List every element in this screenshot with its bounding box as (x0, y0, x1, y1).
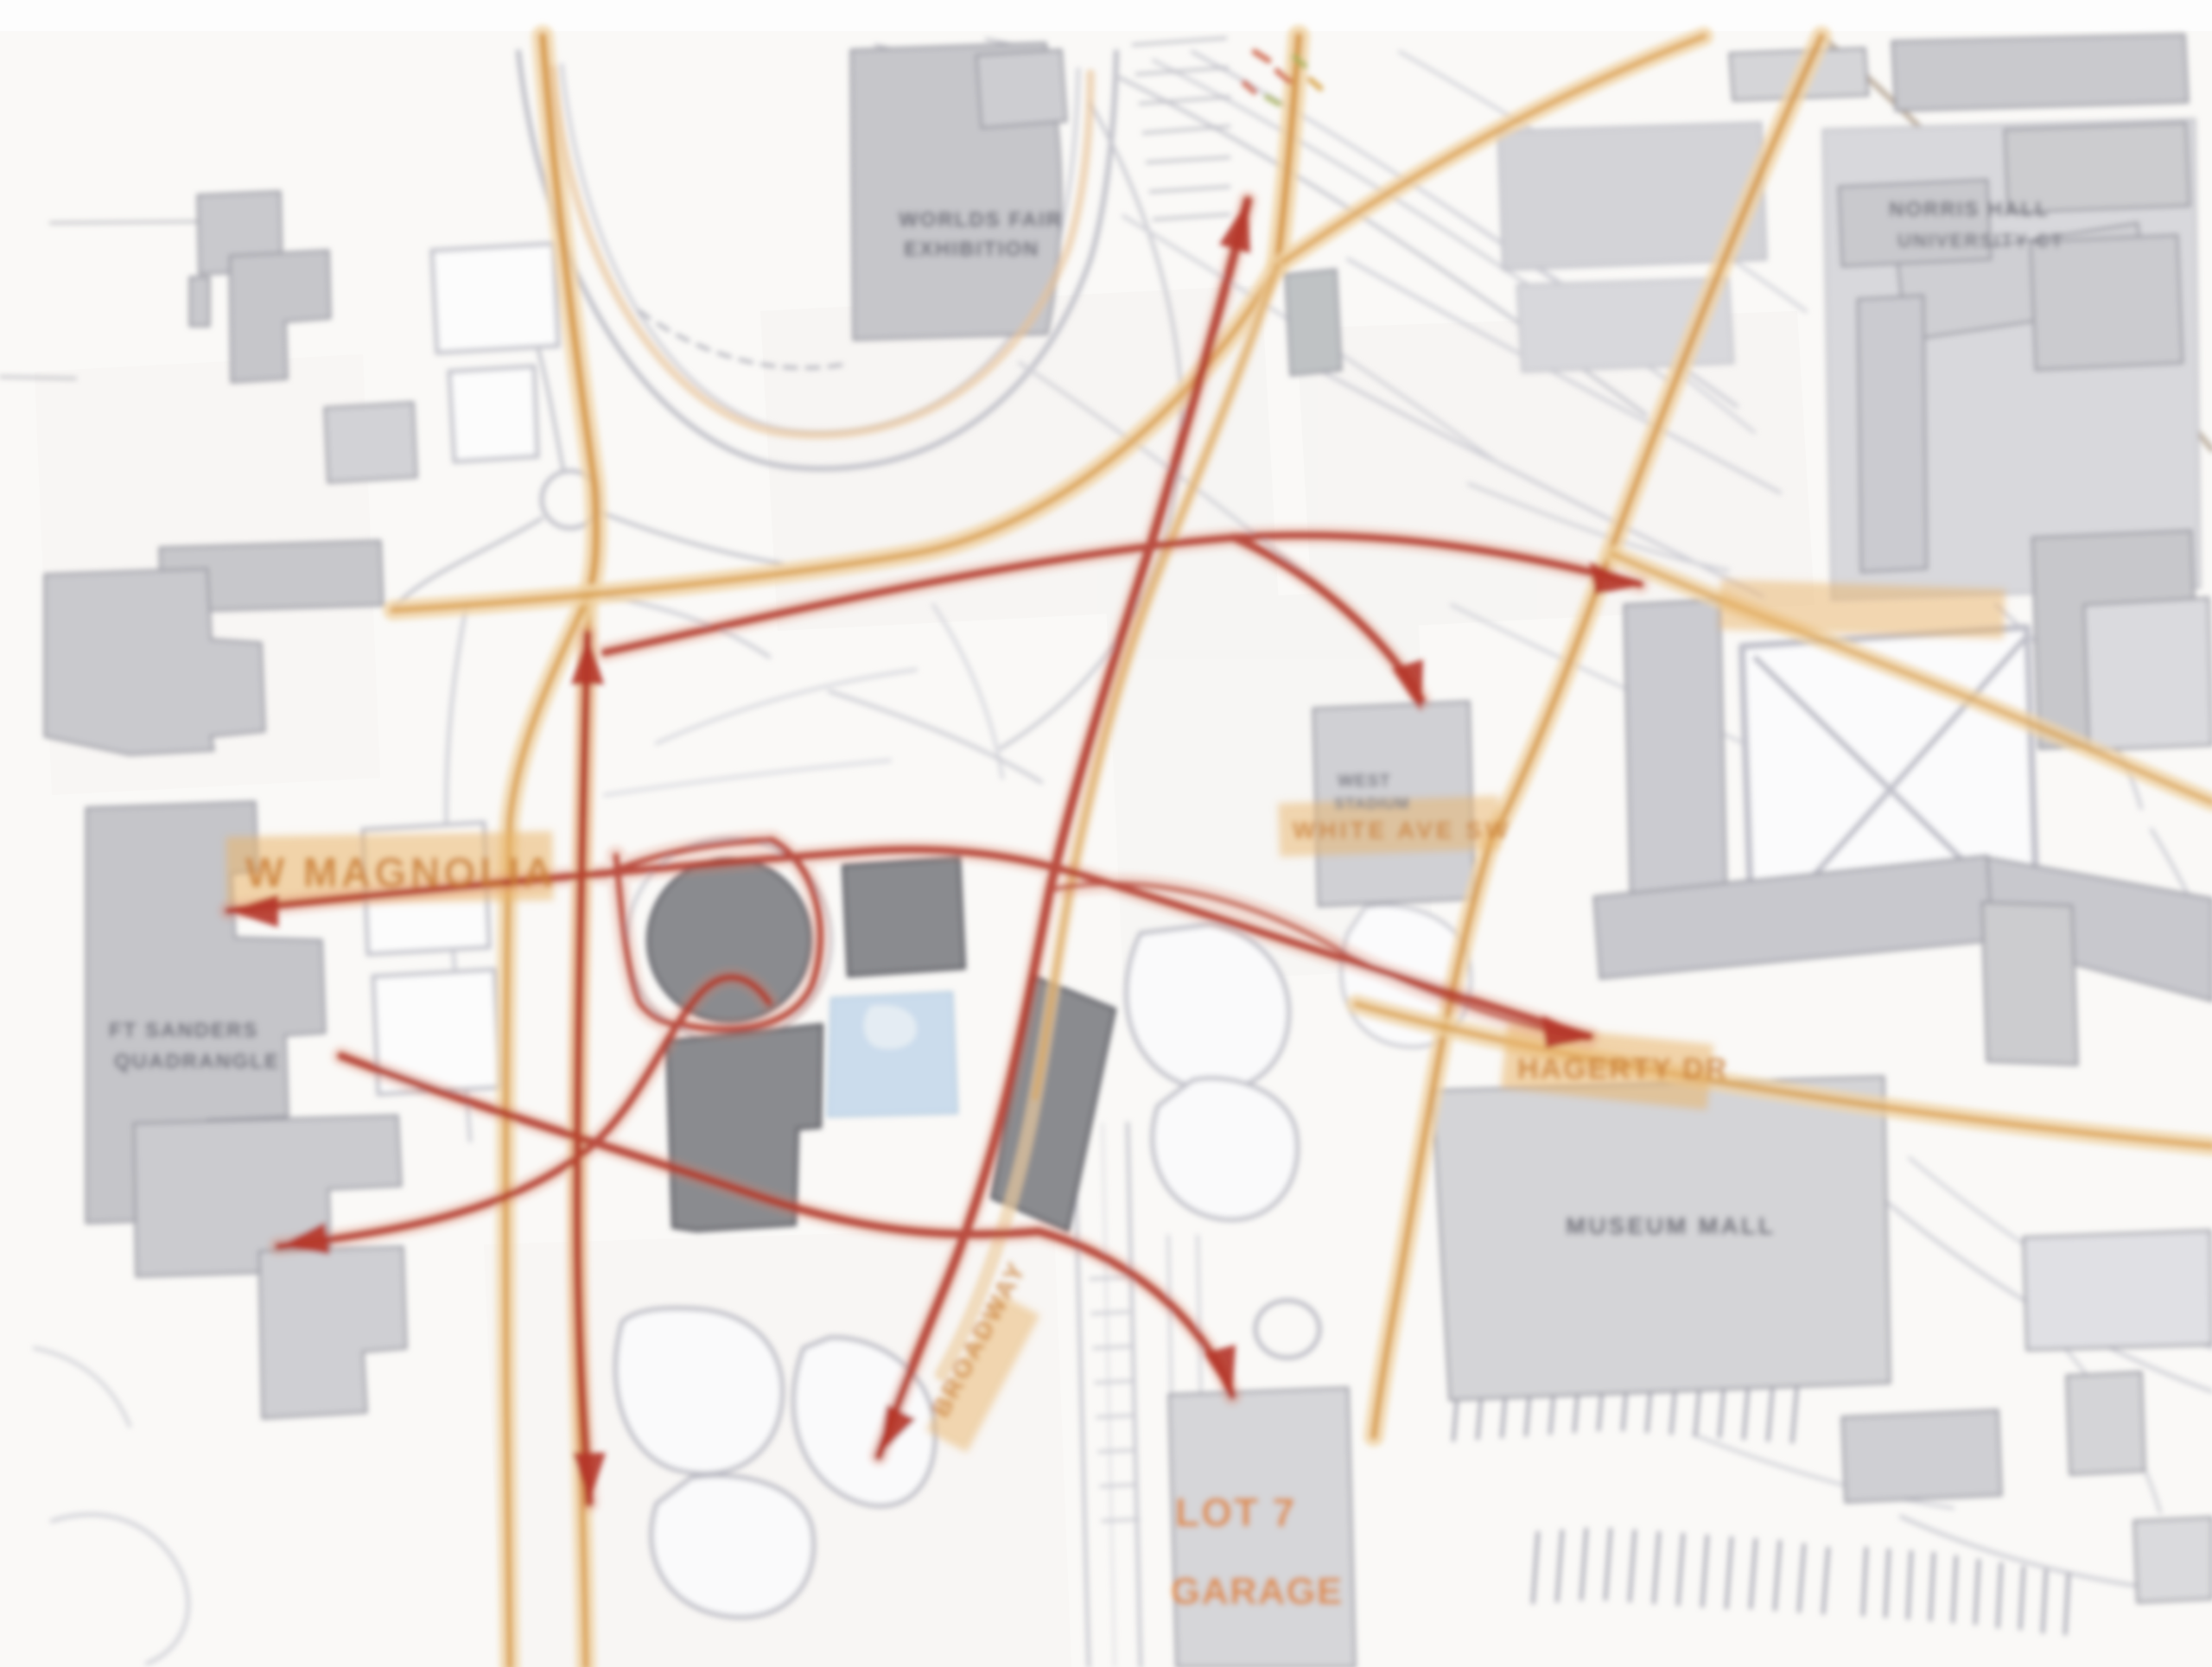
svg-text:UNIVERSITY CT: UNIVERSITY CT (1897, 230, 2064, 251)
svg-text:FT SANDERS: FT SANDERS (109, 1019, 258, 1042)
svg-text:LOT 7: LOT 7 (1175, 1490, 1296, 1535)
svg-text:HAGERTY DR: HAGERTY DR (1517, 1053, 1728, 1085)
svg-text:STADIUM: STADIUM (1334, 795, 1410, 812)
svg-text:EXHIBITION: EXHIBITION (904, 238, 1039, 261)
svg-text:NORRIS HALL: NORRIS HALL (1889, 198, 2050, 221)
svg-text:WORLDS FAIR: WORLDS FAIR (899, 208, 1063, 232)
svg-text:GARAGE: GARAGE (1171, 1570, 1343, 1613)
svg-text:W MAGNOLIA: W MAGNOLIA (245, 850, 556, 896)
svg-text:WEST: WEST (1338, 772, 1391, 791)
svg-text:WHITE AVE SW: WHITE AVE SW (1293, 817, 1511, 843)
svg-text:MUSEUM MALL: MUSEUM MALL (1566, 1212, 1776, 1239)
svg-text:QUADRANGLE: QUADRANGLE (114, 1050, 280, 1073)
